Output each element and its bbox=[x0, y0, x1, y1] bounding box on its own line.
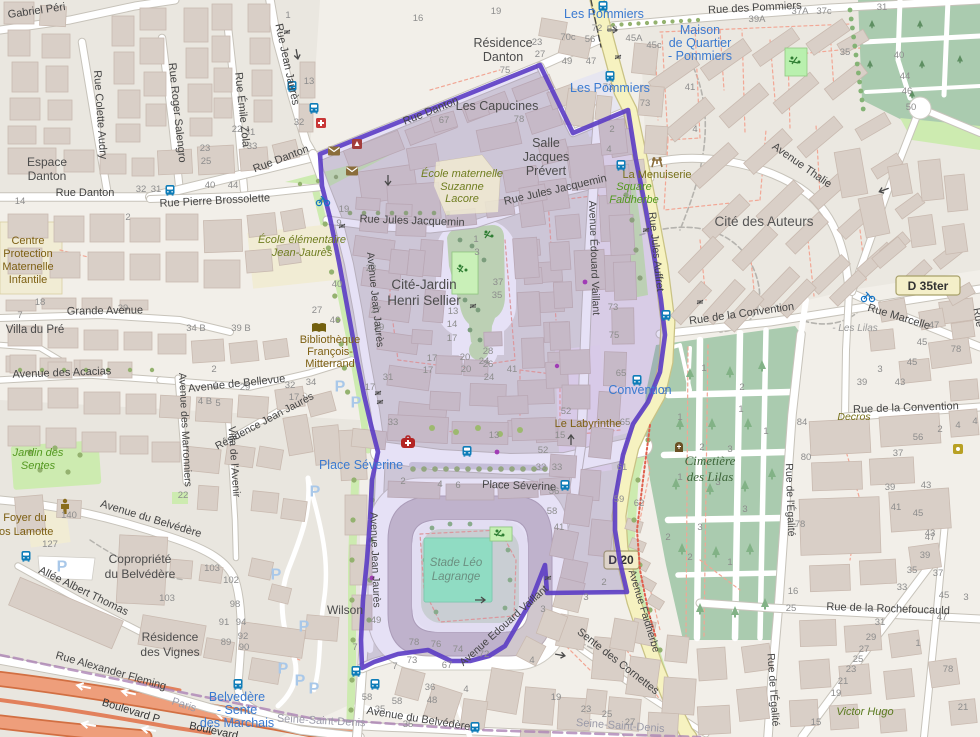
svg-text:103: 103 bbox=[159, 593, 175, 604]
svg-text:Les Pommiers: Les Pommiers bbox=[570, 81, 650, 95]
svg-text:3: 3 bbox=[540, 604, 545, 615]
svg-text:35: 35 bbox=[907, 565, 918, 576]
svg-text:13: 13 bbox=[489, 430, 500, 441]
svg-text:École élémentaire: École élémentaire bbox=[258, 233, 346, 246]
svg-text:los Lamotte: los Lamotte bbox=[0, 526, 53, 538]
svg-text:17: 17 bbox=[423, 365, 434, 376]
svg-text:17: 17 bbox=[365, 382, 376, 393]
svg-text:65: 65 bbox=[616, 368, 627, 379]
svg-text:84: 84 bbox=[797, 417, 808, 428]
svg-text:35: 35 bbox=[492, 290, 503, 301]
svg-text:Place Séverine: Place Séverine bbox=[319, 458, 403, 472]
svg-text:P: P bbox=[335, 379, 346, 396]
svg-text:Infantile: Infantile bbox=[9, 274, 48, 286]
svg-text:Belvedère: Belvedère bbox=[209, 690, 265, 704]
svg-text:2: 2 bbox=[687, 552, 692, 563]
svg-text:103: 103 bbox=[204, 563, 220, 574]
svg-text:45: 45 bbox=[917, 337, 928, 348]
svg-text:Prévert: Prévert bbox=[526, 164, 567, 178]
svg-text:27: 27 bbox=[312, 305, 323, 316]
svg-text:24: 24 bbox=[484, 372, 495, 383]
svg-text:39A: 39A bbox=[749, 14, 767, 25]
svg-text:46: 46 bbox=[330, 315, 341, 326]
svg-text:5: 5 bbox=[215, 398, 220, 409]
svg-text:73: 73 bbox=[640, 98, 651, 109]
svg-text:- Pommiers: - Pommiers bbox=[668, 49, 732, 63]
svg-text:Square: Square bbox=[616, 181, 651, 193]
svg-text:3: 3 bbox=[583, 592, 588, 603]
svg-text:3: 3 bbox=[697, 522, 702, 533]
svg-text:Cité-Jardin: Cité-Jardin bbox=[391, 277, 456, 292]
svg-text:4: 4 bbox=[955, 420, 960, 431]
svg-text:P: P bbox=[351, 395, 362, 412]
svg-text:67: 67 bbox=[439, 115, 450, 126]
svg-text:80: 80 bbox=[801, 452, 812, 463]
svg-text:4: 4 bbox=[692, 124, 697, 135]
svg-text:39 B: 39 B bbox=[231, 323, 251, 334]
svg-text:13: 13 bbox=[304, 76, 315, 87]
svg-text:La Menuiserie: La Menuiserie bbox=[622, 169, 691, 181]
svg-text:16: 16 bbox=[788, 586, 799, 597]
svg-text:67: 67 bbox=[442, 660, 453, 671]
svg-text:Lagrange: Lagrange bbox=[432, 571, 481, 583]
svg-text:7: 7 bbox=[17, 310, 22, 321]
svg-text:Salle: Salle bbox=[532, 136, 560, 150]
svg-text:58: 58 bbox=[362, 692, 373, 703]
svg-text:- Les Lilas: - Les Lilas bbox=[832, 323, 878, 334]
svg-text:29: 29 bbox=[866, 632, 877, 643]
svg-text:43: 43 bbox=[921, 480, 932, 491]
svg-text:45A: 45A bbox=[626, 33, 644, 44]
svg-text:Maternelle: Maternelle bbox=[2, 261, 53, 273]
svg-text:Résidence: Résidence bbox=[142, 630, 199, 644]
svg-text:61: 61 bbox=[617, 462, 628, 473]
svg-text:Jean-Jaurès: Jean-Jaurès bbox=[271, 247, 333, 259]
svg-text:78: 78 bbox=[951, 344, 962, 355]
svg-text:40: 40 bbox=[205, 180, 216, 191]
svg-text:3: 3 bbox=[877, 364, 882, 375]
svg-text:94: 94 bbox=[236, 617, 247, 628]
svg-text:37: 37 bbox=[933, 568, 944, 579]
svg-text:20: 20 bbox=[460, 352, 471, 363]
svg-text:58: 58 bbox=[392, 696, 403, 707]
svg-text:74: 74 bbox=[453, 644, 464, 655]
svg-text:39: 39 bbox=[857, 377, 868, 388]
svg-text:du Belvédère: du Belvédère bbox=[105, 567, 176, 581]
svg-text:Le Labyrinthe: Le Labyrinthe bbox=[555, 418, 622, 430]
svg-text:25: 25 bbox=[786, 603, 797, 614]
svg-text:49: 49 bbox=[371, 615, 382, 626]
svg-text:75: 75 bbox=[609, 330, 620, 341]
svg-text:31: 31 bbox=[875, 617, 886, 628]
svg-text:Maison: Maison bbox=[680, 23, 720, 37]
svg-text:16: 16 bbox=[413, 13, 424, 24]
svg-text:41: 41 bbox=[685, 82, 696, 93]
svg-text:1: 1 bbox=[738, 404, 743, 415]
svg-text:48: 48 bbox=[427, 695, 438, 706]
svg-text:24: 24 bbox=[479, 356, 490, 367]
svg-text:Suzanne: Suzanne bbox=[440, 181, 483, 193]
svg-text:P: P bbox=[310, 484, 321, 501]
svg-text:40: 40 bbox=[894, 50, 905, 61]
svg-text:33: 33 bbox=[552, 462, 563, 473]
svg-text:Les Pommiers: Les Pommiers bbox=[564, 7, 644, 21]
svg-text:14: 14 bbox=[447, 319, 458, 330]
svg-text:1: 1 bbox=[763, 426, 768, 437]
svg-text:34: 34 bbox=[306, 377, 317, 388]
svg-text:2: 2 bbox=[937, 424, 942, 435]
svg-text:23: 23 bbox=[581, 704, 592, 715]
svg-text:78: 78 bbox=[409, 637, 420, 648]
svg-text:33: 33 bbox=[388, 417, 399, 428]
svg-text:2: 2 bbox=[609, 124, 614, 135]
svg-text:56: 56 bbox=[585, 34, 596, 45]
svg-text:37: 37 bbox=[893, 448, 904, 459]
svg-text:58: 58 bbox=[547, 506, 558, 517]
svg-text:Rue de l'Égalité: Rue de l'Égalité bbox=[783, 463, 799, 537]
svg-text:Foyer du: Foyer du bbox=[3, 512, 46, 524]
svg-text:15: 15 bbox=[811, 717, 822, 728]
svg-text:78: 78 bbox=[514, 114, 525, 125]
svg-text:9: 9 bbox=[336, 218, 341, 229]
svg-text:72: 72 bbox=[592, 23, 603, 34]
svg-text:56: 56 bbox=[913, 432, 924, 443]
svg-text:D 35ter: D 35ter bbox=[908, 279, 949, 293]
svg-text:Villa du Pré: Villa du Pré bbox=[6, 324, 65, 336]
svg-text:41: 41 bbox=[507, 364, 518, 375]
svg-text:33: 33 bbox=[536, 462, 547, 473]
svg-text:73: 73 bbox=[407, 655, 418, 666]
svg-text:45: 45 bbox=[913, 508, 924, 519]
svg-text:19: 19 bbox=[339, 204, 350, 215]
svg-text:Protection: Protection bbox=[3, 248, 53, 260]
svg-text:19: 19 bbox=[551, 692, 562, 703]
svg-text:59: 59 bbox=[614, 494, 625, 505]
svg-text:Stade Léo: Stade Léo bbox=[430, 557, 483, 569]
svg-text:18: 18 bbox=[35, 297, 46, 308]
svg-text:2: 2 bbox=[125, 212, 130, 223]
svg-text:98: 98 bbox=[230, 599, 241, 610]
svg-text:3: 3 bbox=[963, 592, 968, 603]
svg-text:21: 21 bbox=[958, 702, 969, 713]
svg-text:Cité des Auteurs: Cité des Auteurs bbox=[714, 214, 813, 229]
svg-text:37c: 37c bbox=[816, 6, 832, 17]
svg-text:76: 76 bbox=[431, 639, 442, 650]
svg-text:P: P bbox=[278, 661, 289, 678]
svg-text:45: 45 bbox=[907, 357, 918, 368]
svg-text:78: 78 bbox=[943, 664, 954, 675]
svg-text:4: 4 bbox=[606, 144, 611, 155]
svg-text:31: 31 bbox=[383, 372, 394, 383]
svg-text:89: 89 bbox=[221, 637, 232, 648]
svg-text:François-: François- bbox=[307, 346, 353, 358]
svg-text:33: 33 bbox=[897, 582, 908, 593]
svg-text:36: 36 bbox=[425, 682, 436, 693]
svg-text:4: 4 bbox=[529, 655, 534, 666]
svg-text:22: 22 bbox=[178, 490, 189, 501]
svg-text:3: 3 bbox=[474, 247, 479, 258]
svg-text:Convention: Convention bbox=[608, 383, 671, 397]
svg-text:Decros: Decros bbox=[837, 411, 871, 423]
svg-text:4 B: 4 B bbox=[198, 396, 212, 407]
svg-text:2: 2 bbox=[699, 442, 704, 453]
svg-text:127: 127 bbox=[42, 539, 58, 550]
svg-text:Lacore: Lacore bbox=[445, 193, 479, 205]
svg-text:62: 62 bbox=[634, 498, 645, 509]
svg-text:27: 27 bbox=[535, 49, 546, 60]
svg-text:140: 140 bbox=[61, 510, 77, 521]
svg-text:32: 32 bbox=[136, 184, 147, 195]
svg-text:4: 4 bbox=[972, 416, 977, 427]
svg-text:41: 41 bbox=[891, 502, 902, 513]
svg-text:2: 2 bbox=[400, 476, 405, 487]
svg-text:Sentes: Sentes bbox=[21, 460, 56, 472]
svg-text:Grande Avenue: Grande Avenue bbox=[67, 304, 143, 317]
svg-text:17: 17 bbox=[447, 333, 458, 344]
svg-text:P: P bbox=[309, 681, 320, 698]
svg-text:École maternelle: École maternelle bbox=[421, 167, 503, 180]
svg-text:52: 52 bbox=[607, 24, 618, 35]
svg-text:20: 20 bbox=[461, 364, 472, 375]
svg-text:Victor Hugo: Victor Hugo bbox=[836, 706, 893, 718]
svg-text:49: 49 bbox=[562, 56, 573, 67]
svg-text:31: 31 bbox=[151, 184, 162, 195]
svg-text:35: 35 bbox=[840, 47, 851, 58]
svg-text:Mitterrand: Mitterrand bbox=[305, 358, 355, 370]
svg-text:P: P bbox=[299, 619, 310, 636]
svg-text:Wilson: Wilson bbox=[327, 603, 363, 617]
svg-text:Centre: Centre bbox=[11, 235, 44, 247]
svg-text:Cimetière: Cimetière bbox=[685, 453, 736, 468]
svg-text:Les Capucines: Les Capucines bbox=[456, 99, 539, 113]
svg-text:2: 2 bbox=[601, 577, 606, 588]
svg-text:2: 2 bbox=[739, 382, 744, 393]
svg-text:45c: 45c bbox=[646, 40, 662, 51]
svg-text:1: 1 bbox=[727, 557, 732, 568]
svg-text:17: 17 bbox=[427, 353, 438, 364]
svg-text:Résidence: Résidence bbox=[473, 36, 532, 50]
svg-text:44: 44 bbox=[228, 180, 239, 191]
svg-text:70c: 70c bbox=[560, 32, 576, 43]
svg-text:52: 52 bbox=[538, 445, 549, 456]
svg-text:50: 50 bbox=[906, 102, 917, 113]
svg-text:des Lilas: des Lilas bbox=[687, 469, 734, 484]
svg-text:1: 1 bbox=[285, 10, 290, 21]
svg-text:21: 21 bbox=[838, 676, 849, 687]
svg-text:4: 4 bbox=[463, 684, 468, 695]
svg-text:Bibliothèque: Bibliothèque bbox=[300, 334, 361, 346]
svg-text:32: 32 bbox=[285, 380, 296, 391]
svg-text:- Sente: - Sente bbox=[217, 703, 257, 717]
svg-text:92: 92 bbox=[238, 631, 249, 642]
svg-text:Espace: Espace bbox=[27, 155, 67, 169]
svg-text:34 B: 34 B bbox=[186, 323, 206, 334]
svg-text:91: 91 bbox=[219, 617, 230, 628]
svg-text:des Vignes: des Vignes bbox=[140, 645, 199, 659]
svg-text:44: 44 bbox=[900, 71, 911, 82]
svg-text:32: 32 bbox=[294, 117, 305, 128]
svg-text:2: 2 bbox=[211, 364, 216, 375]
svg-text:3: 3 bbox=[742, 504, 747, 515]
svg-text:de Quartier: de Quartier bbox=[669, 36, 732, 50]
svg-text:45: 45 bbox=[939, 590, 950, 601]
svg-text:2: 2 bbox=[665, 532, 670, 543]
svg-text:des Marchais: des Marchais bbox=[200, 716, 274, 730]
svg-text:Henri Sellier: Henri Sellier bbox=[387, 293, 461, 308]
svg-text:19: 19 bbox=[491, 6, 502, 17]
svg-text:47: 47 bbox=[586, 56, 597, 67]
svg-text:102: 102 bbox=[223, 575, 239, 586]
svg-text:23: 23 bbox=[532, 37, 543, 48]
svg-text:1: 1 bbox=[677, 472, 682, 483]
svg-text:Jardin des: Jardin des bbox=[12, 447, 64, 459]
svg-text:39: 39 bbox=[885, 482, 896, 493]
svg-text:7: 7 bbox=[392, 661, 397, 672]
svg-text:39: 39 bbox=[920, 550, 931, 561]
svg-text:Danton: Danton bbox=[483, 50, 523, 64]
svg-text:75: 75 bbox=[500, 65, 511, 76]
svg-text:19: 19 bbox=[831, 688, 842, 699]
svg-text:Danton: Danton bbox=[28, 169, 67, 183]
svg-text:15: 15 bbox=[555, 430, 566, 441]
svg-text:P: P bbox=[295, 673, 306, 690]
svg-text:14: 14 bbox=[15, 196, 26, 207]
svg-text:43: 43 bbox=[895, 377, 906, 388]
svg-text:41: 41 bbox=[554, 522, 565, 533]
svg-text:47: 47 bbox=[925, 532, 936, 543]
svg-text:40: 40 bbox=[332, 279, 343, 290]
svg-text:37: 37 bbox=[493, 277, 504, 288]
svg-text:46: 46 bbox=[902, 86, 913, 97]
svg-text:4: 4 bbox=[437, 479, 442, 490]
svg-text:Copropriété: Copropriété bbox=[109, 552, 172, 566]
svg-text:1: 1 bbox=[473, 234, 478, 245]
svg-text:1: 1 bbox=[915, 638, 920, 649]
svg-text:Rue Danton: Rue Danton bbox=[56, 187, 115, 199]
svg-text:23: 23 bbox=[200, 143, 211, 154]
svg-text:25: 25 bbox=[201, 156, 212, 167]
svg-text:7: 7 bbox=[352, 642, 357, 653]
svg-text:31: 31 bbox=[877, 2, 888, 13]
svg-text:1: 1 bbox=[677, 412, 682, 423]
svg-text:73: 73 bbox=[608, 302, 619, 313]
svg-text:P: P bbox=[271, 567, 282, 584]
svg-text:Jacques: Jacques bbox=[523, 150, 570, 164]
svg-text:90: 90 bbox=[239, 642, 250, 653]
svg-text:1: 1 bbox=[701, 363, 706, 374]
svg-text:52: 52 bbox=[561, 406, 572, 417]
svg-text:6: 6 bbox=[455, 480, 460, 491]
svg-text:Faidherbe: Faidherbe bbox=[609, 194, 659, 206]
svg-text:23: 23 bbox=[846, 664, 857, 675]
